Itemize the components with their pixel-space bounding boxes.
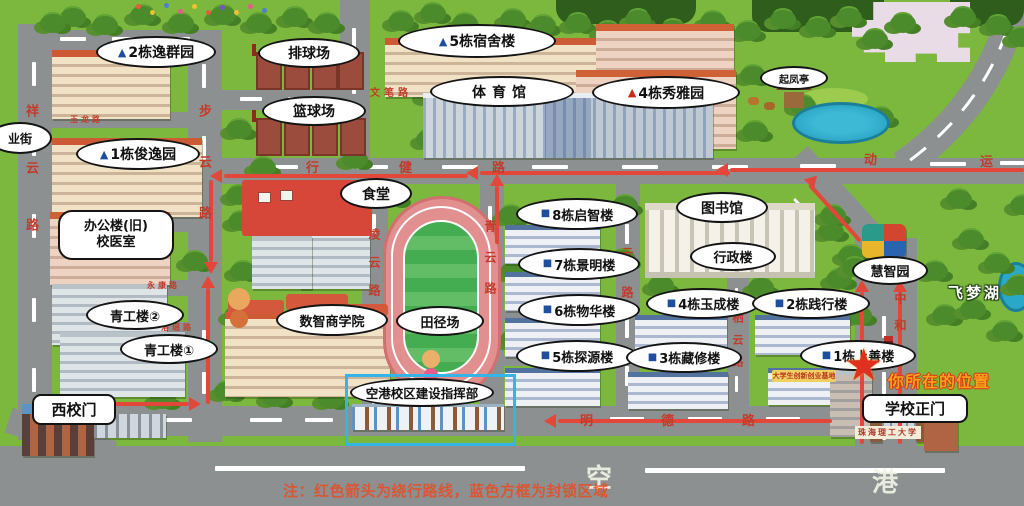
tree (836, 8, 862, 27)
tree (932, 306, 958, 325)
blue-square-icon: ■ (541, 351, 550, 361)
label-library: 图书馆 (676, 192, 768, 223)
road-label-yundong2: 运 (980, 156, 993, 169)
label-b4: ■ 4栋玉成楼 (646, 288, 760, 319)
label-text: 7栋景明楼 (554, 255, 615, 274)
tree (282, 8, 308, 27)
label-text: 3栋藏修楼 (659, 348, 720, 367)
label-huizhi-garden: 慧智园 (852, 256, 928, 285)
road-label-qiyun: 栖云路 (732, 312, 743, 378)
label-track-field: 田径场 (396, 306, 484, 336)
tree (862, 30, 888, 49)
route-arrow-left (544, 414, 556, 428)
label-admin: 行政楼 (690, 242, 776, 271)
building-dorm4-wing (596, 24, 734, 73)
tree (226, 120, 252, 139)
blue-square-icon: ■ (775, 299, 784, 309)
road-dash (645, 468, 945, 473)
label-text: 1栋俊逸园 (110, 144, 176, 164)
label-qinggong2: 青工楼② (86, 300, 184, 330)
blue-triangle-icon: ▲ (439, 36, 447, 47)
label-text: 5栋探源楼 (552, 347, 613, 366)
tree (958, 230, 984, 249)
label-b6: ■ 6栋物华楼 (518, 294, 640, 326)
route-arrow-up (201, 276, 215, 288)
road-dash (240, 97, 262, 101)
tree (984, 254, 1010, 273)
road-dash (250, 418, 282, 422)
blue-square-icon: ■ (822, 351, 831, 361)
tree (388, 12, 414, 31)
road-label-qingyun: 青云路 (484, 220, 496, 313)
road-dash (735, 376, 738, 392)
road-label-konggang2: 港 (872, 462, 898, 499)
tree (992, 322, 1018, 341)
road-dash (622, 165, 658, 169)
road-label-yongkang: 永康路 (147, 282, 180, 290)
label-volleyball: 排球场 (258, 38, 360, 68)
label-b5: ■ 5栋探源楼 (516, 340, 638, 372)
road-dash (202, 64, 206, 88)
tree (770, 10, 796, 29)
label-gate-sign: 珠海理工大学 (855, 426, 921, 439)
label-text: 食堂 (362, 184, 390, 204)
tree (246, 14, 272, 33)
tree (1010, 196, 1024, 215)
label-west-gate: 西校门 (32, 394, 116, 425)
blue-square-icon: ■ (667, 299, 676, 309)
label-text: 办公楼(旧) (84, 219, 148, 235)
label-qinggong1: 青工楼① (120, 334, 218, 364)
label-dorm1: ▲ 1栋俊逸园 (76, 138, 200, 170)
tree (130, 6, 156, 25)
label-text: 行政楼 (713, 247, 752, 266)
flower (164, 3, 169, 8)
label-text: 排球场 (288, 43, 330, 63)
label-dorm5: ▲ 5栋宿舍楼 (398, 24, 556, 58)
flower (220, 5, 225, 10)
label-text: 2栋践行楼 (786, 294, 847, 313)
label-office-clinic: 办公楼(旧) 校医室 (58, 210, 174, 260)
tree (805, 18, 831, 37)
flower (206, 10, 211, 15)
tree (314, 14, 340, 33)
route-west-gate (105, 402, 189, 406)
cube-sculpture (862, 224, 906, 258)
blue-square-icon: ■ (648, 353, 657, 363)
road-dash (305, 418, 333, 422)
label-text: 空港校区建设指挥部 (366, 383, 479, 402)
road-label-xingjian: 行健路 (306, 162, 585, 175)
label-text: 数智商学院 (299, 311, 364, 330)
tree (985, 16, 1011, 35)
road-label-buyun: 步云路 (197, 104, 210, 257)
deer (764, 102, 775, 110)
label-innovation-base: 大学生创新创业基地 (772, 370, 836, 382)
label-text: 4栋玉成楼 (678, 294, 739, 313)
deer (748, 97, 759, 105)
tree (742, 122, 768, 141)
road-label-lingyun: 凌云路 (368, 228, 380, 312)
campus-map: 祥云路 步云路 凌云路 青云路 紫云路 栖云路 中和路 行健路 明德路 文笔路 … (0, 0, 1024, 506)
court (256, 118, 282, 156)
tree (565, 14, 591, 33)
label-text: 校医室 (96, 235, 135, 251)
label-basketball: 篮球场 (262, 96, 366, 126)
label-feimeng-lake: 飞梦湖 (948, 282, 1002, 303)
legend-note: 注：红色箭头为绕行路线，蓝色方框为封锁区域 (283, 480, 609, 501)
road-dash (1000, 161, 1024, 165)
label-you-are-here: 你所在的位置 (888, 368, 990, 392)
route-arrow-left (716, 163, 728, 177)
court-pole (252, 110, 256, 122)
label-b7: ■ 7栋景明楼 (518, 248, 640, 280)
tree (946, 190, 972, 209)
canteen-vent (258, 192, 271, 203)
route-arrow-left (210, 169, 222, 183)
label-hq: 空港校区建设指挥部 (350, 378, 494, 407)
label-text: 6栋物华楼 (554, 301, 615, 320)
flower (150, 10, 155, 15)
label-text: 2栋逸群园 (128, 42, 194, 62)
label-b8: ■ 8栋启智楼 (516, 198, 638, 230)
label-text: 8栋启智楼 (552, 205, 613, 224)
label-text: 青工楼① (144, 340, 194, 359)
label-gym: 体育馆 (430, 76, 574, 107)
court-pole (252, 44, 256, 56)
label-text: 篮球场 (293, 101, 335, 121)
blue-square-icon: ■ (541, 209, 550, 219)
label-text: 5栋宿舍楼 (449, 31, 515, 51)
blue-triangle-icon: ▲ (118, 47, 126, 58)
label-text: 田径场 (420, 312, 459, 331)
road-label-mingde: 明德路 (580, 415, 823, 428)
red-triangle-icon: ▲ (628, 87, 636, 98)
label-text: 体育馆 (472, 82, 532, 102)
route-arrow-down (204, 262, 218, 274)
star-icon: ★ (844, 344, 883, 388)
label-qifeng-pavilion: 起凤亭 (760, 66, 828, 90)
label-dorm4: ▲ 4栋秀雅园 (592, 76, 740, 109)
tree (735, 22, 761, 41)
label-canteen: 食堂 (340, 178, 412, 209)
building-b3 (628, 372, 728, 409)
bear-mascot (228, 288, 250, 310)
tree (950, 8, 976, 27)
flower (234, 10, 239, 15)
label-text: 图书馆 (701, 198, 743, 218)
label-business-school: 数智商学院 (276, 304, 388, 336)
label-text: 慧智园 (870, 261, 909, 280)
blue-triangle-icon: ▲ (100, 149, 108, 160)
building-canteen-annex (252, 236, 312, 289)
label-b3: ■ 3栋藏修楼 (626, 342, 742, 373)
tree (420, 4, 446, 23)
road-label-yundong1: 动 (864, 154, 877, 167)
flower (178, 9, 183, 14)
building-b5 (505, 368, 600, 406)
pond (792, 102, 890, 144)
tree (168, 14, 194, 33)
road-label-yulong: 玉龙路 (70, 116, 103, 124)
track-infield (403, 220, 479, 374)
blue-square-icon: ■ (543, 305, 552, 315)
label-text: 业街 (8, 130, 32, 147)
tree (92, 16, 118, 35)
road-dash (930, 162, 966, 166)
label-text: 学校正门 (885, 398, 945, 419)
label-main-gate: 学校正门 (862, 394, 968, 423)
route-arrow-right (189, 397, 201, 411)
flower (262, 8, 267, 13)
road-dash (215, 466, 525, 471)
bear-mascot (422, 350, 440, 368)
road-dash (32, 368, 36, 392)
blue-square-icon: ■ (543, 259, 552, 269)
road-dash (32, 62, 36, 86)
pavilion-body (784, 92, 804, 108)
label-text: 4栋秀雅园 (638, 83, 704, 103)
road-dash (32, 298, 36, 322)
tree (40, 14, 66, 33)
label-text: 青工楼② (110, 306, 160, 325)
label-text: 西校门 (51, 399, 96, 420)
canteen-vent (280, 190, 293, 201)
label-text: 起凤亭 (779, 71, 809, 86)
label-dorm2: ▲ 2栋逸群园 (96, 36, 216, 68)
court (340, 118, 366, 156)
road-dash (882, 316, 886, 338)
label-b2: ■ 2栋践行楼 (752, 288, 870, 319)
road-dash (60, 37, 86, 41)
flower (136, 4, 141, 9)
road-label-wenbi: 文笔路 (370, 89, 412, 99)
tree (890, 14, 916, 33)
flower (248, 4, 253, 9)
flower (192, 4, 197, 9)
